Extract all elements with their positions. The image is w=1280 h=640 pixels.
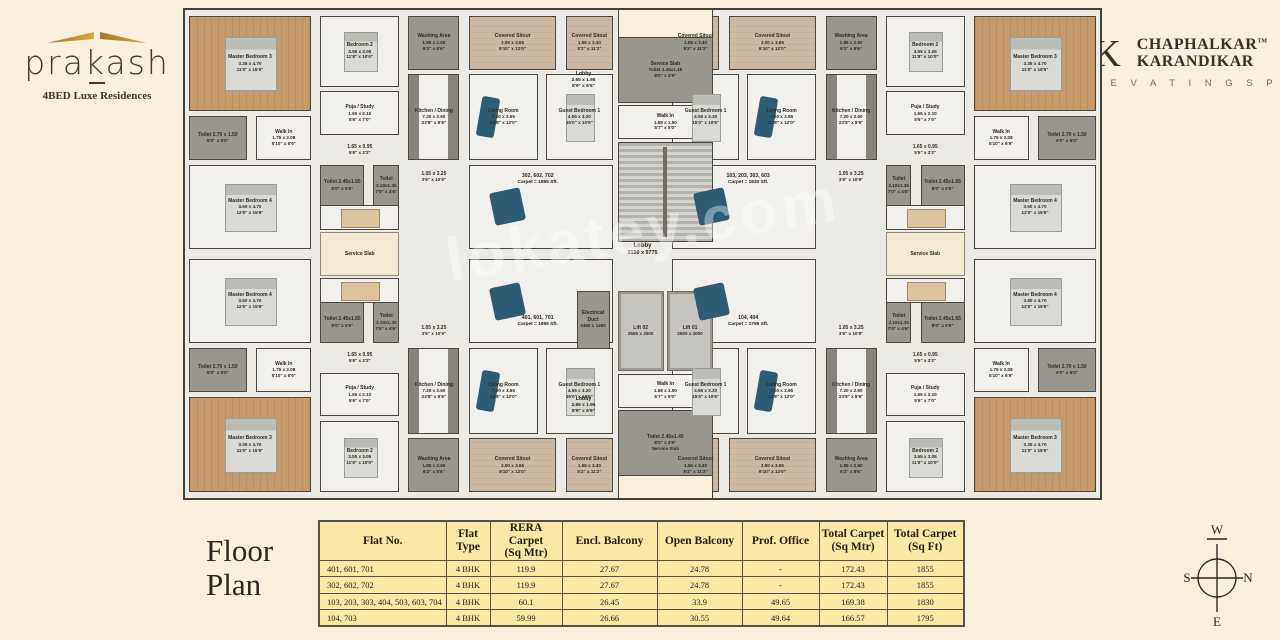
master-bedroom-4-bl: Master Bedroom 43.60 x 4.7012'0" x 15'6" — [189, 259, 312, 343]
cell-2-1: 4 BHK — [446, 593, 490, 610]
toilet-master-3-label-1: 9'0" x 5'0" — [1056, 370, 1078, 376]
brand-underline — [89, 82, 105, 84]
cell-0-6: 172.43 — [819, 560, 887, 577]
toilet-master-3-br: Toilet 2.70 x 1.509'0" x 5'0" — [1038, 348, 1097, 392]
covered-sitout-small-label-2: 5'2" x 11'2" — [683, 46, 707, 52]
living-room-label-2: 22'8" x 12'0" — [768, 120, 795, 126]
flat-spec-table-header: Flat No.Flat TypeRERA Carpet(Sq Mtr)Encl… — [319, 521, 964, 560]
toilet-master-4-bl: Toilet 2.45x1.658'0" x 5'6" — [320, 302, 364, 343]
bedroom-2-label-2: 11'8" x 10'0" — [912, 460, 939, 466]
covered-sitout-large-bl: Covered Sitout3.00 x 3.659'10" x 12'0" — [469, 438, 557, 492]
cell-3-4: 30.55 — [657, 610, 742, 627]
toilet-master-3-label-1: 9'0" x 5'0" — [207, 138, 229, 144]
compass-south-label: S — [1183, 570, 1190, 585]
living-room-br: Living Room7.00 x 3.6522'8" x 12'0" — [747, 348, 817, 433]
walk-in-master-3-tl: Walk In1.75 x 2.085'10" x 6'9" — [256, 116, 311, 160]
passage-a-bl: 1.65 x 0.955'6" x 3'2" — [320, 348, 399, 368]
covered-sitout-large-label-2: 9'10" x 12'0" — [759, 469, 786, 475]
cell-0-7: 1855 — [887, 560, 964, 577]
cell-1-3: 27.67 — [562, 577, 657, 594]
dining-area-bl — [320, 278, 399, 302]
header-col-0: Flat No. — [319, 521, 446, 560]
toilet-master-3-tr: Toilet 2.70 x 1.509'0" x 5'0" — [1038, 116, 1097, 160]
cell-2-6: 169.38 — [819, 593, 887, 610]
label-lobby-main: Lobby2150 x 9775 — [588, 242, 698, 257]
puja-study-label-2: 5'6" x 7'0" — [349, 398, 371, 404]
label-lobby-main-line-0: Lobby — [588, 242, 698, 250]
covered-sitout-small-bl: Covered Sitout1.55 x 3.405'2" x 11'2" — [566, 438, 614, 492]
service-slab-right-label-0: Service Slab — [910, 251, 940, 258]
toilet-master-4-tr: Toilet 2.45x1.658'0" x 5'6" — [921, 165, 965, 206]
header-col-1: Flat Type — [446, 521, 490, 560]
cell-2-5: 49.65 — [742, 593, 819, 610]
service-slab-left: Service Slab — [320, 232, 399, 277]
label-flat-103: 103, 203, 303, 603Carpet = 1830 Sft. — [705, 173, 792, 186]
header-col-7: Total Carpet(Sq Ft) — [887, 521, 964, 560]
walk-in-master-3-label-2: 5'10" x 6'9" — [272, 141, 296, 147]
toilet-common-tr: Toilet2.10x1.357'0" x 4'6" — [886, 165, 912, 206]
passage-b-br: 1.05 x 3.253'6" x 10'9" — [826, 319, 877, 343]
passage-a-tl: 1.65 x 0.955'6" x 3'2" — [320, 140, 399, 160]
passage-a-tr: 1.65 x 0.955'6" x 3'2" — [886, 140, 965, 160]
header-col-5: Prof. Office — [742, 521, 819, 560]
passage-a-label-1: 5'6" x 3'2" — [349, 358, 371, 364]
puja-study-label-2: 5'6" x 7'0" — [349, 117, 371, 123]
kitchen-dining-label-2: 23'8" x 8'6" — [422, 394, 446, 400]
puja-study-bl: Puja / Study1.65 x 2.105'6" x 7'0" — [320, 373, 399, 417]
walk-in-master-3-label-2: 5'10" x 6'9" — [989, 373, 1013, 379]
covered-sitout-large-label-2: 9'10" x 12'0" — [499, 469, 526, 475]
developer-name: CHAPHALKARTM KARANDIKAR — [1137, 37, 1267, 70]
toilet-common-label-2: 7'0" x 4'6" — [888, 326, 910, 332]
electrical-duct: Electrical Duct2450 x 1450 — [577, 291, 610, 350]
page-title-line1: Floor — [206, 534, 273, 568]
toilet-master-3-label-1: 9'0" x 5'0" — [207, 370, 229, 376]
master-bedroom-3-label-2: 11'0" x 15'5" — [1022, 67, 1049, 73]
table-row-0: 401, 601, 7014 BHK119.927.6724.78-172.43… — [319, 560, 964, 577]
service-toilet-bottom-label-2: Service Slab — [652, 446, 679, 452]
floor-plan: lokatey.com Master Bedroom 33.35 x 4.701… — [183, 8, 1102, 500]
bedroom-2-label-2: 11'8" x 10'0" — [346, 54, 373, 60]
toilet-common-br: Toilet2.10x1.357'0" x 4'6" — [886, 302, 912, 343]
cell-0-5: - — [742, 560, 819, 577]
puja-study-br: Puja / Study1.65 x 2.105'6" x 7'0" — [886, 373, 965, 417]
cell-2-4: 33.9 — [657, 593, 742, 610]
master-bedroom-3-label-2: 11'0" x 15'5" — [237, 67, 264, 73]
toilet-common-tl: Toilet2.10x1.357'0" x 4'6" — [373, 165, 399, 206]
cell-0-3: 27.67 — [562, 560, 657, 577]
brand-logo: prakash 4BED Luxe Residences — [12, 30, 182, 102]
bedroom-2-br: Bedroom 23.55 x 3.0511'8" x 10'0" — [886, 421, 965, 492]
cell-3-7: 1795 — [887, 610, 964, 627]
label-lobby-upper: Lobby2.65 x 1.958'9" x 6'6" — [554, 71, 613, 91]
cell-2-7: 1830 — [887, 593, 964, 610]
kitchen-dining-br: Kitchen / Dining7.20 x 2.6023'8" x 8'6" — [826, 348, 877, 433]
label-lobby-main-line-1: 2150 x 9775 — [588, 250, 698, 257]
washing-area-tl: Washing Area1.85 x 2.606'2" x 8'6" — [408, 16, 459, 70]
bedroom-2-tl: Bedroom 23.55 x 3.0511'8" x 10'0" — [320, 16, 399, 87]
cell-2-0: 103, 203, 303, 404, 503, 603, 704 — [319, 593, 446, 610]
cell-3-6: 166.57 — [819, 610, 887, 627]
living-room-label-2: 22'8" x 12'0" — [490, 394, 517, 400]
cell-2-3: 26.45 — [562, 593, 657, 610]
toilet-common-bl: Toilet2.10x1.357'0" x 4'6" — [373, 302, 399, 343]
master-bedroom-4-label-2: 12'0" x 15'6" — [236, 210, 263, 216]
toilet-master-3-bl: Toilet 2.70 x 1.509'0" x 5'0" — [189, 348, 248, 392]
brand-name: prakash — [12, 46, 182, 79]
passage-a-label-1: 5'6" x 3'2" — [914, 150, 936, 156]
bedroom-2-label-2: 11'8" x 10'0" — [346, 460, 373, 466]
covered-sitout-small-tl: Covered Sitout1.55 x 3.405'2" x 11'2" — [566, 16, 614, 70]
cell-0-0: 401, 601, 701 — [319, 560, 446, 577]
label-flat-104-line-1: Carpet = 1795 Sft. — [705, 322, 792, 328]
cell-0-1: 4 BHK — [446, 560, 490, 577]
cell-1-0: 302, 602, 702 — [319, 577, 446, 594]
toilet-master-4-label-1: 8'0" x 5'6" — [932, 323, 954, 329]
puja-study-tr: Puja / Study1.65 x 2.105'6" x 7'0" — [886, 91, 965, 135]
dining-area-tl — [320, 205, 399, 229]
header-col-3: Encl. Balcony — [562, 521, 657, 560]
kitchen-dining-label-2: 23'8" x 8'6" — [422, 120, 446, 126]
cell-1-6: 172.43 — [819, 577, 887, 594]
kitchen-dining-label-2: 23'8" x 8'6" — [839, 120, 863, 126]
master-bedroom-3-tr: Master Bedroom 33.35 x 4.7011'0" x 15'5" — [974, 16, 1097, 111]
label-flat-302: 302, 602, 702Carpet = 1855 Sft. — [494, 173, 581, 186]
kitchen-dining-tr: Kitchen / Dining7.20 x 2.6023'8" x 8'6" — [826, 74, 877, 159]
passage-b-label-1: 3'6" x 10'9" — [839, 177, 863, 183]
cell-1-5: - — [742, 577, 819, 594]
kitchen-dining-tl: Kitchen / Dining7.20 x 2.6023'8" x 8'6" — [408, 74, 459, 159]
puja-study-label-2: 5'6" x 7'0" — [914, 398, 936, 404]
cell-1-2: 119.9 — [490, 577, 562, 594]
label-lobby-lower: Lobby2.65 x 1.958'9" x 6'6" — [554, 396, 613, 416]
label-flat-401-line-1: Carpet = 1855 Sft. — [494, 322, 581, 328]
toilet-master-4-tl: Toilet 2.45x1.658'0" x 5'6" — [320, 165, 364, 206]
master-bedroom-3-label-2: 11'0" x 15'5" — [1022, 448, 1049, 454]
guest-bedroom-1-label-2: 15'0" x 10'6" — [692, 120, 719, 126]
toilet-common-label-2: 7'0" x 4'6" — [375, 189, 397, 195]
label-lobby-lower-line-2: 8'9" x 6'6" — [554, 409, 613, 415]
kitchen-dining-bl: Kitchen / Dining7.20 x 2.6023'8" x 8'6" — [408, 348, 459, 433]
compass-north-label: N — [1243, 570, 1253, 585]
passage-a-br: 1.65 x 0.955'6" x 3'2" — [886, 348, 965, 368]
guest-bedroom-1-bl: Guest Bedroom 14.55 x 3.2015'0" x 10'6" — [546, 348, 614, 433]
covered-sitout-large-tr: Covered Sitout3.00 x 3.659'10" x 12'0" — [729, 16, 817, 70]
header-col-4: Open Balcony — [657, 521, 742, 560]
service-slab-right: Service Slab — [886, 232, 965, 277]
master-bedroom-3-label-2: 11'0" x 15'5" — [237, 448, 264, 454]
page-title: Floor Plan — [206, 534, 273, 602]
master-bedroom-3-tl: Master Bedroom 33.35 x 4.7011'0" x 15'5" — [189, 16, 312, 111]
page-title-line2: Plan — [206, 568, 273, 602]
puja-study-label-2: 5'6" x 7'0" — [914, 117, 936, 123]
dining-area-tr — [886, 205, 965, 229]
walk-in-master-3-bl: Walk In1.75 x 2.085'10" x 6'9" — [256, 348, 311, 392]
puja-study-tl: Puja / Study1.65 x 2.105'6" x 7'0" — [320, 91, 399, 135]
passage-a-label-1: 5'6" x 3'2" — [349, 150, 371, 156]
flat-spec-table: Flat No.Flat TypeRERA Carpet(Sq Mtr)Encl… — [318, 520, 965, 627]
label-flat-401-line-0: 401, 601, 701 — [494, 315, 581, 322]
covered-sitout-small-label-2: 5'2" x 11'2" — [577, 46, 601, 52]
washing-area-label-2: 6'2" x 8'6" — [423, 469, 445, 475]
cell-1-4: 24.78 — [657, 577, 742, 594]
label-flat-104-line-0: 104, 404 — [705, 315, 792, 322]
header-col-6: Total Carpet(Sq Mtr) — [819, 521, 887, 560]
toilet-master-3-tl: Toilet 2.70 x 1.509'0" x 5'0" — [189, 116, 248, 160]
cell-3-5: 49.64 — [742, 610, 819, 627]
living-room-bl: Living Room7.00 x 3.6522'8" x 12'0" — [469, 348, 539, 433]
master-bedroom-4-label-2: 12'0" x 15'6" — [1022, 304, 1049, 310]
washing-area-bl: Washing Area1.85 x 2.606'2" x 8'6" — [408, 438, 459, 492]
walk-in-top-label-2: 5'7" x 5'0" — [654, 125, 676, 131]
toilet-common-label-2: 7'0" x 4'6" — [888, 189, 910, 195]
toilet-master-4-label-1: 8'0" x 5'6" — [331, 323, 353, 329]
washing-area-tr: Washing Area1.85 x 2.606'2" x 8'6" — [826, 16, 877, 70]
walk-in-master-3-tr: Walk In1.75 x 2.085'10" x 6'9" — [974, 116, 1029, 160]
living-room-tr: Living Room7.00 x 3.6522'8" x 12'0" — [747, 74, 817, 159]
brand-tagline: 4BED Luxe Residences — [12, 90, 182, 102]
toilet-master-4-label-1: 8'0" x 5'6" — [932, 186, 954, 192]
master-bedroom-4-tl: Master Bedroom 43.60 x 4.7012'0" x 15'6" — [189, 165, 312, 249]
covered-sitout-small-label-2: 5'2" x 11'2" — [683, 469, 707, 475]
kitchen-dining-label-2: 23'8" x 8'6" — [839, 394, 863, 400]
trademark-symbol: TM — [1257, 39, 1267, 45]
master-bedroom-3-bl: Master Bedroom 33.35 x 4.7011'0" x 15'5" — [189, 397, 312, 492]
cell-1-1: 4 BHK — [446, 577, 490, 594]
walk-in-master-3-br: Walk In1.75 x 2.085'10" x 6'9" — [974, 348, 1029, 392]
cell-3-3: 26.66 — [562, 610, 657, 627]
passage-b-tl: 1.05 x 3.253'6" x 10'9" — [408, 165, 459, 189]
walk-in-master-3-label-2: 5'10" x 6'9" — [989, 141, 1013, 147]
table-row-1: 302, 602, 7024 BHK119.927.6724.78-172.43… — [319, 577, 964, 594]
electrical-duct-label-1: 2450 x 1450 — [580, 323, 606, 329]
compass-icon: W S N E — [1181, 518, 1253, 630]
covered-sitout-small-label-2: 5'2" x 11'2" — [577, 469, 601, 475]
passage-b-label-1: 3'6" x 10'9" — [422, 177, 446, 183]
developer-name-line2: KARANDIKAR — [1137, 54, 1267, 71]
brand-bowtie-icon — [45, 30, 149, 44]
label-lobby-upper-line-0: Lobby — [554, 71, 613, 78]
passage-b-label-1: 3'6" x 10'9" — [839, 331, 863, 337]
cell-0-4: 24.78 — [657, 560, 742, 577]
passage-b-tr: 1.05 x 3.253'6" x 10'9" — [826, 165, 877, 189]
walk-in-master-3-label-2: 5'10" x 6'9" — [272, 373, 296, 379]
passage-b-label-1: 3'6" x 10'9" — [422, 331, 446, 337]
bedroom-2-tr: Bedroom 23.55 x 3.0511'8" x 10'0" — [886, 16, 965, 87]
passage-a-label-1: 5'6" x 3'2" — [914, 358, 936, 364]
guest-bedroom-1-label-2: 15'0" x 10'6" — [692, 394, 719, 400]
covered-sitout-large-label-2: 9'10" x 12'0" — [759, 46, 786, 52]
living-room-tl: Living Room7.00 x 3.6522'8" x 12'0" — [469, 74, 539, 159]
covered-sitout-large-tl: Covered Sitout3.00 x 3.659'10" x 12'0" — [469, 16, 557, 70]
header-col-2: RERA Carpet(Sq Mtr) — [490, 521, 562, 560]
cell-3-0: 104, 703 — [319, 610, 446, 627]
cell-1-7: 1855 — [887, 577, 964, 594]
passage-b-bl: 1.05 x 3.253'6" x 10'9" — [408, 319, 459, 343]
label-lobby-upper-line-2: 8'9" x 6'6" — [554, 84, 613, 90]
compass-east-label: E — [1213, 614, 1221, 629]
compass-west-label: W — [1211, 522, 1224, 537]
living-room-label-2: 22'8" x 12'0" — [768, 394, 795, 400]
master-bedroom-3-br: Master Bedroom 33.35 x 4.7011'0" x 15'5" — [974, 397, 1097, 492]
developer-name-line1: CHAPHALKAR — [1137, 36, 1258, 53]
service-toilet-top-label-2: 8'0" x 4'9" — [654, 73, 676, 79]
lift-01-label-1: 2500 x 2000 — [677, 331, 703, 337]
cell-3-1: 4 BHK — [446, 610, 490, 627]
covered-sitout-large-label-2: 9'10" x 12'0" — [499, 46, 526, 52]
toilet-master-3-label-1: 9'0" x 5'0" — [1056, 138, 1078, 144]
master-bedroom-4-label-2: 12'0" x 15'6" — [1022, 210, 1049, 216]
toilet-master-4-label-1: 8'0" x 5'6" — [331, 186, 353, 192]
lift-02: Lift 022500 x 2000 — [618, 291, 664, 372]
cell-2-2: 60.1 — [490, 593, 562, 610]
electrical-duct-label-0: Electrical Duct — [578, 310, 609, 323]
master-bedroom-4-label-2: 12'0" x 15'6" — [236, 304, 263, 310]
lift-02-label-1: 2500 x 2000 — [628, 331, 654, 337]
master-bedroom-4-tr: Master Bedroom 43.60 x 4.7012'0" x 15'6" — [974, 165, 1097, 249]
living-room-label-2: 22'8" x 12'0" — [490, 120, 517, 126]
washing-area-br: Washing Area1.85 x 2.606'2" x 8'6" — [826, 438, 877, 492]
flat-spec-table-body: 401, 601, 7014 BHK119.927.6724.78-172.43… — [319, 560, 964, 626]
dining-area-br — [886, 278, 965, 302]
bedroom-2-label-2: 11'8" x 10'0" — [912, 54, 939, 60]
table-row-3: 104, 7034 BHK59.9926.6630.5549.64166.571… — [319, 610, 964, 627]
master-bedroom-4-br: Master Bedroom 43.60 x 4.7012'0" x 15'6" — [974, 259, 1097, 343]
cell-3-2: 59.99 — [490, 610, 562, 627]
washing-area-label-2: 6'2" x 8'6" — [840, 469, 862, 475]
notch-bottom — [618, 476, 713, 498]
toilet-master-4-br: Toilet 2.45x1.658'0" x 5'6" — [921, 302, 965, 343]
cell-0-2: 119.9 — [490, 560, 562, 577]
label-lobby-lower-line-0: Lobby — [554, 396, 613, 403]
washing-area-label-2: 6'2" x 8'6" — [423, 46, 445, 52]
bedroom-2-bl: Bedroom 23.55 x 3.0511'8" x 10'0" — [320, 421, 399, 492]
label-flat-104: 104, 404Carpet = 1795 Sft. — [705, 315, 792, 328]
label-flat-401: 401, 601, 701Carpet = 1855 Sft. — [494, 315, 581, 328]
guest-bedroom-1-label-2: 15'0" x 10'6" — [566, 120, 593, 126]
walk-in-bottom-label-2: 5'7" x 5'0" — [654, 394, 676, 400]
service-slab-left-label-0: Service Slab — [345, 251, 375, 258]
label-flat-103-line-1: Carpet = 1830 Sft. — [705, 180, 792, 186]
washing-area-label-2: 6'2" x 8'6" — [840, 46, 862, 52]
label-flat-302-line-1: Carpet = 1855 Sft. — [494, 180, 581, 186]
table-row-2: 103, 203, 303, 404, 503, 603, 7044 BHK60… — [319, 593, 964, 610]
toilet-common-label-2: 7'0" x 4'6" — [375, 326, 397, 332]
covered-sitout-large-br: Covered Sitout3.00 x 3.659'10" x 12'0" — [729, 438, 817, 492]
